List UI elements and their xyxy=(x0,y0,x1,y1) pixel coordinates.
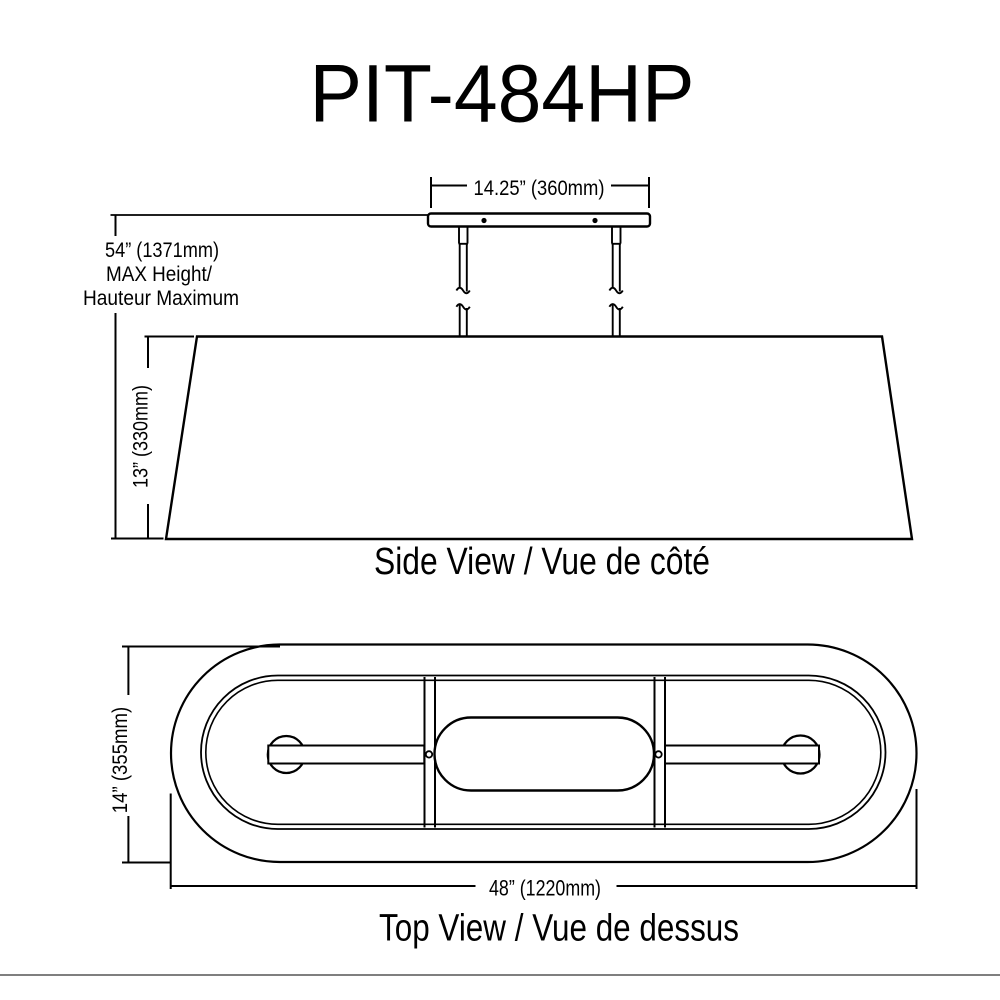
svg-text:48” (1220mm): 48” (1220mm) xyxy=(489,876,601,901)
svg-text:54” (1371mm): 54” (1371mm) xyxy=(105,238,219,262)
svg-text:14.25” (360mm): 14.25” (360mm) xyxy=(474,176,605,200)
svg-text:PIT-484HP: PIT-484HP xyxy=(310,49,695,140)
svg-text:Side View / Vue de côté: Side View / Vue de côté xyxy=(374,541,710,583)
svg-text:Top View / Vue de dessus: Top View / Vue de dessus xyxy=(379,908,739,950)
svg-text:MAX Height/: MAX Height/ xyxy=(106,262,212,286)
svg-text:Hauteur Maximum: Hauteur Maximum xyxy=(83,286,239,310)
svg-text:14” (355mm): 14” (355mm) xyxy=(108,707,132,813)
svg-text:13” (330mm): 13” (330mm) xyxy=(129,385,153,488)
